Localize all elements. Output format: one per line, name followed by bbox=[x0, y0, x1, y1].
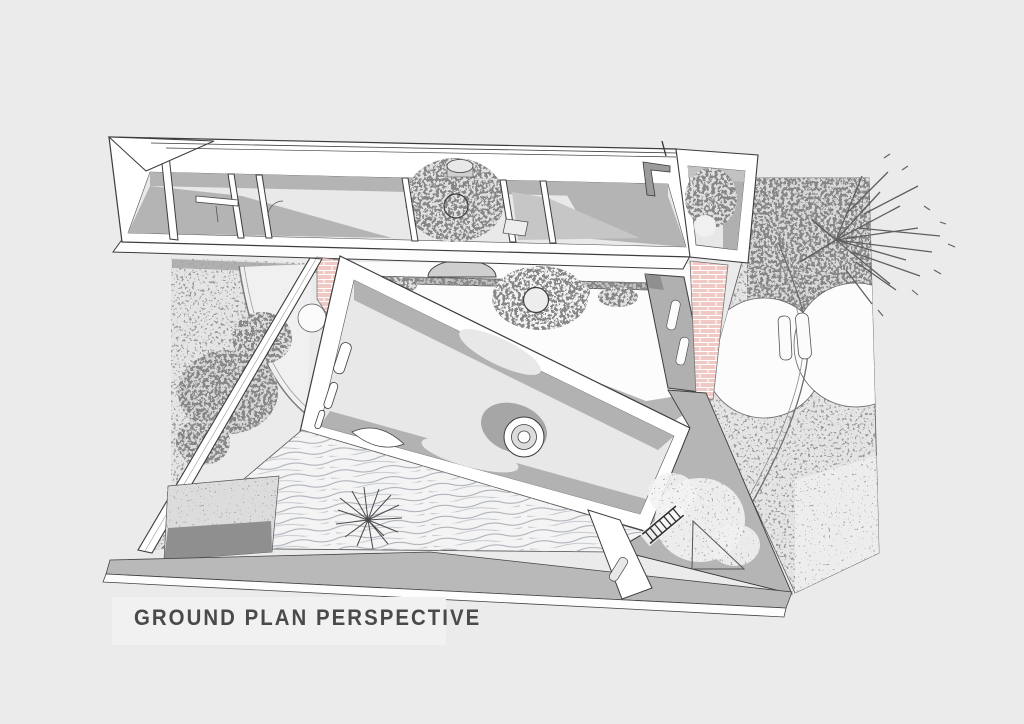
drawing-title: GROUND PLAN PERSPECTIVE bbox=[134, 606, 460, 632]
stepping-stone bbox=[778, 316, 792, 361]
shrub bbox=[598, 287, 638, 307]
desk bbox=[503, 219, 528, 236]
courtyard-tree-trunk-ring bbox=[524, 288, 549, 313]
garden-section-face bbox=[164, 476, 279, 560]
north-building bbox=[109, 137, 758, 269]
round-table bbox=[447, 160, 473, 173]
ground-plan-perspective-drawing: GROUND PLAN PERSPECTIVE bbox=[0, 0, 1024, 724]
north-building-east-room bbox=[676, 149, 758, 263]
